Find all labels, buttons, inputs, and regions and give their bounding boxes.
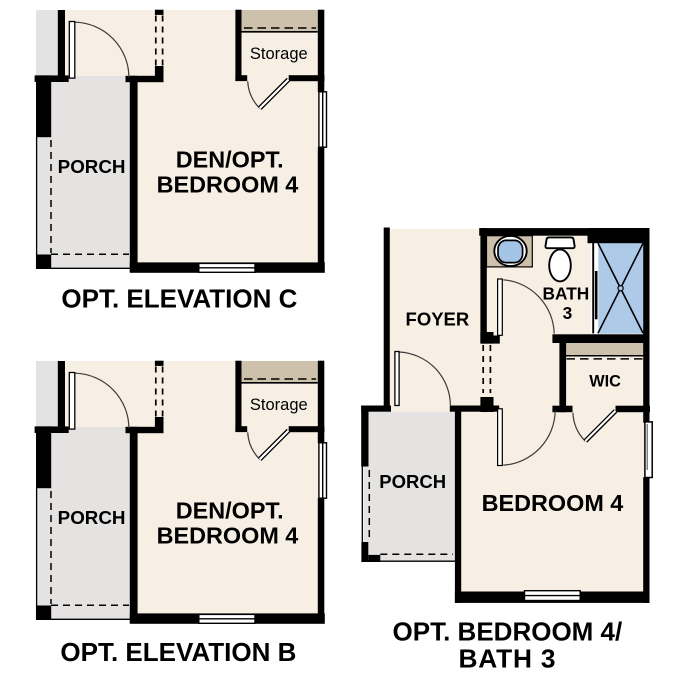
svg-text:BATH 3: BATH 3: [458, 643, 556, 673]
svg-text:OPT. ELEVATION B: OPT. ELEVATION B: [60, 637, 296, 667]
svg-text:WIC: WIC: [589, 373, 621, 391]
svg-text:DEN/OPT.: DEN/OPT.: [176, 497, 284, 523]
svg-text:BATH: BATH: [543, 284, 590, 304]
svg-text:OPT. ELEVATION C: OPT. ELEVATION C: [61, 283, 297, 313]
svg-text:BEDROOM 4: BEDROOM 4: [157, 523, 299, 549]
svg-text:FOYER: FOYER: [406, 308, 470, 329]
svg-text:OPT. BEDROOM 4/: OPT. BEDROOM 4/: [393, 617, 623, 647]
svg-text:3: 3: [563, 303, 573, 323]
svg-text:Storage: Storage: [250, 396, 308, 414]
svg-text:BEDROOM 4: BEDROOM 4: [157, 172, 299, 198]
svg-text:PORCH: PORCH: [58, 507, 126, 528]
svg-text:Storage: Storage: [250, 45, 308, 63]
svg-text:BEDROOM 4: BEDROOM 4: [482, 490, 624, 516]
svg-text:DEN/OPT.: DEN/OPT.: [176, 146, 284, 172]
svg-text:PORCH: PORCH: [379, 471, 446, 492]
svg-text:PORCH: PORCH: [58, 156, 126, 177]
